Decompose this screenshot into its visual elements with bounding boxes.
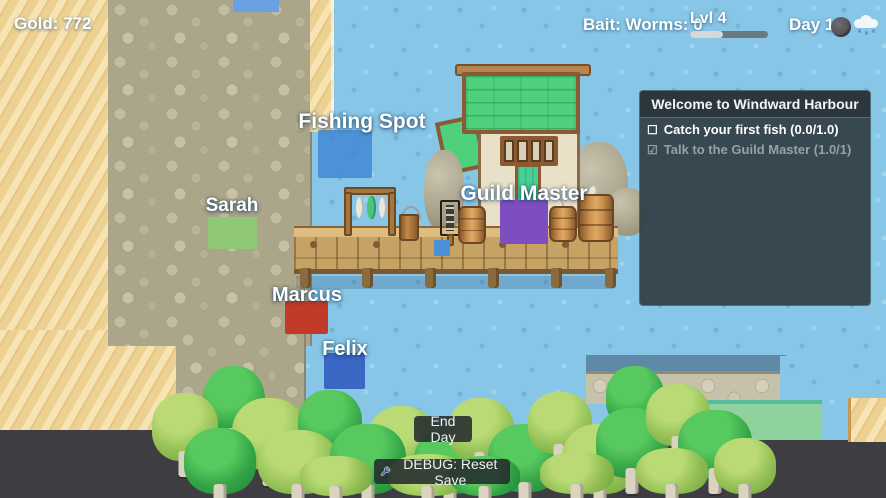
window-pane <box>544 140 554 162</box>
checkbox-unchecked-icon: ☐ <box>647 122 658 138</box>
checkbox-checked-icon: ☑ <box>647 142 658 158</box>
quest-label: Talk to the Guild Master (1.0/1) <box>664 142 852 158</box>
dock-post <box>362 268 373 288</box>
quest-panel: Welcome to Windward Harbour ☐ Catch your… <box>640 91 870 305</box>
fish-rack-post <box>344 192 352 236</box>
window-pane <box>504 140 514 162</box>
tree <box>540 452 614 494</box>
dock-post <box>551 268 562 288</box>
level-label: Lvl 4 <box>690 10 726 28</box>
tree <box>300 456 372 496</box>
marcus-label: Marcus <box>272 284 342 307</box>
dock-rail-knob <box>310 241 317 248</box>
fishing-spot-label: Fishing Spot <box>298 110 425 134</box>
dock-rail-knob <box>373 241 380 248</box>
deep-water-strip <box>586 355 786 372</box>
house-window-band <box>500 136 558 166</box>
beach-sand <box>0 0 110 342</box>
window-pane <box>531 140 541 162</box>
window-pane <box>517 140 527 162</box>
hanging-fish-icon <box>367 196 376 219</box>
sarah-label: Sarah <box>206 195 259 217</box>
end-day-button[interactable]: End Day <box>414 416 472 442</box>
barrel <box>549 206 577 242</box>
player-marker <box>434 240 450 256</box>
debug-reset-save-button[interactable]: DEBUG: Reset Save <box>374 459 510 484</box>
bucket <box>399 214 419 241</box>
debug-button-label: DEBUG: Reset Save <box>397 456 504 488</box>
dock-post <box>488 268 499 288</box>
wrench-icon <box>380 465 391 478</box>
fishing-spot-marker[interactable] <box>318 130 372 178</box>
house-roof <box>462 72 580 134</box>
guild-master-label: Guild Master <box>460 182 587 206</box>
cloud-shape <box>860 15 872 27</box>
day-counter: Day 1 <box>789 15 834 35</box>
quest-label: Catch your first fish (0.0/1.0) <box>664 122 839 138</box>
gold-counter: Gold: 772 <box>14 14 91 34</box>
tree <box>636 448 708 494</box>
quest-item-talk-guild-master: ☑ Talk to the Guild Master (1.0/1) <box>640 138 870 158</box>
tree <box>714 438 776 494</box>
bait-counter: Bait: Worms: 0 <box>583 15 703 35</box>
rain-drop <box>858 29 861 33</box>
water-inlet-tile <box>233 0 279 12</box>
quest-item-catch-fish: ☐ Catch your first fish (0.0/1.0) <box>640 118 870 138</box>
hanging-fish-icon <box>356 197 364 218</box>
npc-sarah-marker[interactable] <box>208 217 257 249</box>
barrel <box>458 206 486 244</box>
quest-panel-title: Welcome to Windward Harbour <box>651 96 858 112</box>
hanging-fish-icon <box>379 197 387 218</box>
tree <box>184 428 256 494</box>
rain-drop <box>872 29 875 33</box>
game-scene: Fishing Spot Sarah Guild Master Marcus F… <box>0 0 886 498</box>
xp-progress-fill <box>690 31 723 38</box>
dock-rail-knob <box>562 241 569 248</box>
xp-progress-bar <box>690 31 768 38</box>
rain-drop <box>865 31 868 35</box>
price-sign <box>440 200 460 236</box>
moon-icon <box>831 17 851 37</box>
dock-shadow <box>296 276 616 289</box>
fish-rack-post <box>388 192 396 236</box>
dock-post <box>425 268 436 288</box>
sand-ledge-right <box>848 398 886 442</box>
rain-cloud-icon <box>853 15 881 37</box>
felix-label: Felix <box>322 338 368 361</box>
end-day-button-label: End Day <box>420 413 466 445</box>
npc-guild-master-marker[interactable] <box>500 200 548 244</box>
dock-post <box>605 268 616 288</box>
quest-panel-header: Welcome to Windward Harbour <box>640 91 870 118</box>
